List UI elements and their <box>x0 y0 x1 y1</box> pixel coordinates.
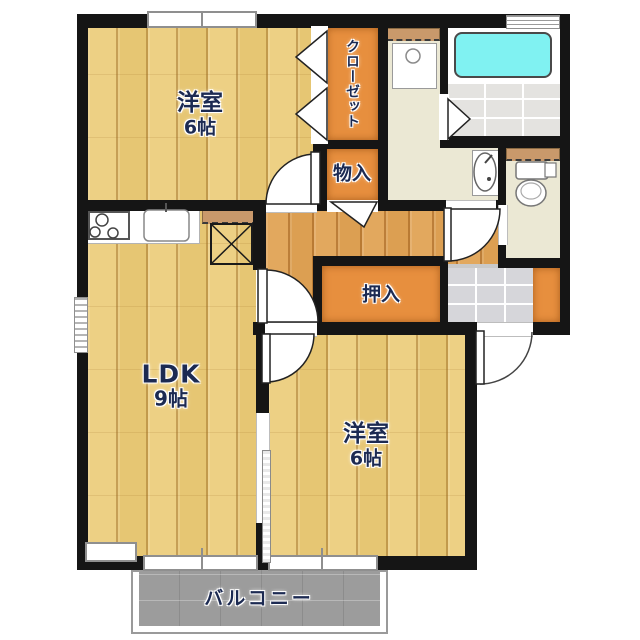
bedroom2-size: 6帖 <box>350 444 382 471</box>
storage-label: 物入 <box>333 159 371 186</box>
bedroom2-door-swing <box>266 334 314 382</box>
closet-label: クローゼット <box>342 39 362 129</box>
kitchen-sink <box>144 210 189 241</box>
toilet-bowl <box>516 180 546 206</box>
washer-tap <box>406 49 420 63</box>
bedroom2-door-leaf <box>262 334 270 383</box>
floor-plan: 洋室 6帖 LDK 9帖 洋室 6帖 クローゼット 物入 押入 バルコニー <box>0 0 640 640</box>
washroom-door-swing <box>448 209 500 261</box>
stove-burner-2 <box>90 227 100 237</box>
oshiire-label: 押入 <box>362 280 400 307</box>
toilet-side-box <box>545 163 556 177</box>
hall-door-leaf <box>258 269 267 323</box>
closet-fold-door-bottom <box>296 88 327 140</box>
bath-fold-door <box>448 99 470 139</box>
toilet-tank <box>516 162 548 179</box>
bedroom1-door-swing <box>266 154 316 204</box>
ldk-size: 9帖 <box>154 383 188 412</box>
closet-fold-door-top <box>296 31 327 83</box>
storage-fold-door <box>331 202 377 227</box>
washbasin-drain <box>487 177 491 181</box>
front-door-swing <box>480 332 532 384</box>
front-door-leaf <box>476 331 484 384</box>
bedroom1-door-leaf <box>311 152 320 204</box>
hall-door-swing <box>266 270 318 322</box>
balcony-label: バルコニー <box>204 584 314 611</box>
washbasin-bowl <box>474 153 496 191</box>
symbol-overlay <box>0 0 640 640</box>
stove-burner-1 <box>96 214 108 226</box>
washroom-door-leaf <box>444 208 451 261</box>
stove-burner-3 <box>108 228 118 238</box>
bedroom1-size: 6帖 <box>184 113 216 140</box>
